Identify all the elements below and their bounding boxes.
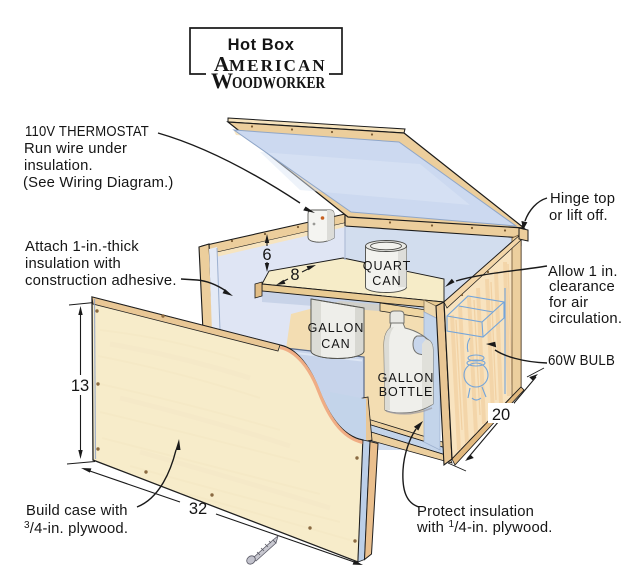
svg-text:8: 8 <box>290 266 299 284</box>
svg-text:for air: for air <box>549 295 588 311</box>
svg-text:construction adhesive.: construction adhesive. <box>25 273 177 289</box>
svg-text:CAN: CAN <box>372 274 401 288</box>
svg-text:insulation with: insulation with <box>25 256 121 272</box>
svg-text:W: W <box>211 68 233 93</box>
svg-text:GALLON: GALLON <box>378 371 435 385</box>
svg-text:Allow 1 in.: Allow 1 in. <box>548 264 618 280</box>
svg-text:clearance: clearance <box>549 279 615 295</box>
svg-text:insulation.: insulation. <box>24 158 93 174</box>
svg-text:circulation.: circulation. <box>549 311 622 327</box>
svg-text:(See Wiring Diagram.): (See Wiring Diagram.) <box>23 175 174 191</box>
svg-text:60W BULB: 60W BULB <box>548 353 615 369</box>
svg-text:GALLON: GALLON <box>308 321 365 335</box>
svg-text:CAN: CAN <box>321 337 350 351</box>
svg-text:Run wire under: Run wire under <box>24 141 127 157</box>
svg-text:BOTTLE: BOTTLE <box>379 385 434 399</box>
svg-text:20: 20 <box>492 406 510 424</box>
svg-text:Build case with: Build case with <box>26 503 128 519</box>
svg-text:with 1/4-in. plywood.: with 1/4-in. plywood. <box>416 519 553 536</box>
svg-text:Hot Box: Hot Box <box>228 36 295 54</box>
svg-text:QUART: QUART <box>363 259 412 273</box>
svg-text:OODWORKER: OODWORKER <box>232 74 326 93</box>
svg-text:or lift off.: or lift off. <box>549 208 608 224</box>
svg-text:Protect insulation: Protect insulation <box>417 504 534 520</box>
svg-text:Attach 1-in.-thick: Attach 1-in.-thick <box>25 239 139 255</box>
svg-text:6: 6 <box>262 246 271 264</box>
svg-text:MERICAN: MERICAN <box>229 56 327 75</box>
svg-text:13: 13 <box>71 377 89 395</box>
svg-text:110V THERMOSTAT: 110V THERMOSTAT <box>25 124 149 140</box>
svg-text:3/4-in. plywood.: 3/4-in. plywood. <box>24 520 128 537</box>
svg-text:Hinge top: Hinge top <box>550 191 615 207</box>
